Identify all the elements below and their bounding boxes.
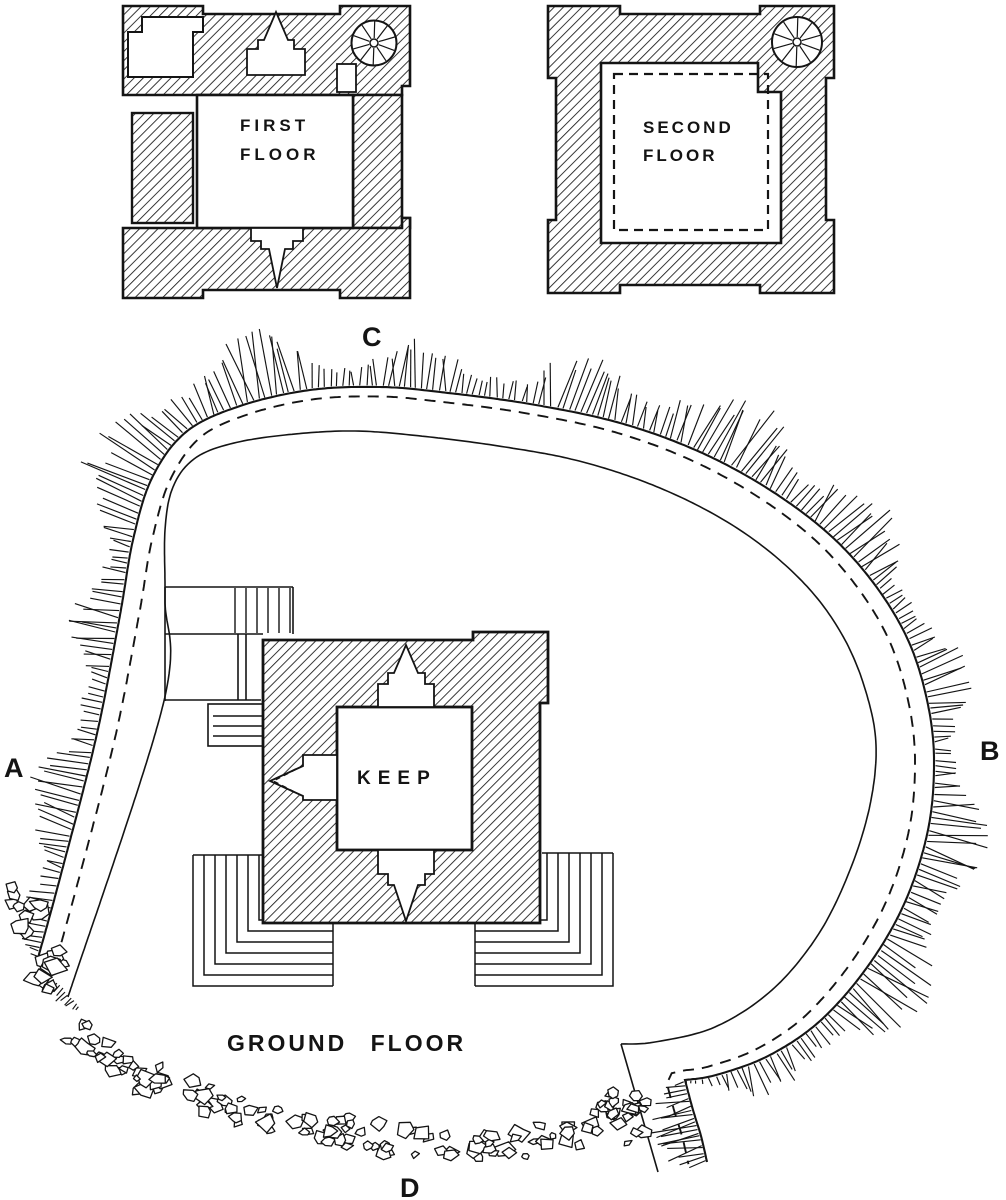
marker-d: D [400, 1173, 420, 1200]
marker-c: C [362, 322, 382, 352]
second-floor-label-line2: FLOOR [643, 146, 718, 165]
figure-canvas: FIRST FLOOR SECOND FLOOR KEEP [0, 0, 1006, 1200]
castle-plan-figure: FIRST FLOOR SECOND FLOOR KEEP [0, 0, 1006, 1200]
keep-label: KEEP [357, 768, 437, 789]
first-floor-label-line2: FLOOR [240, 145, 320, 164]
first-floor-label-line1: FIRST [240, 116, 309, 135]
marker-a: A [4, 753, 24, 783]
marker-b: B [980, 736, 1000, 766]
first-floor-stair-notch [337, 64, 356, 92]
first-floor-east-wall [353, 95, 410, 228]
ground-floor-caption: GROUND FLOOR [227, 1030, 466, 1056]
second-floor-label-line1: SECOND [643, 118, 734, 137]
first-floor-west-pier [132, 113, 193, 223]
